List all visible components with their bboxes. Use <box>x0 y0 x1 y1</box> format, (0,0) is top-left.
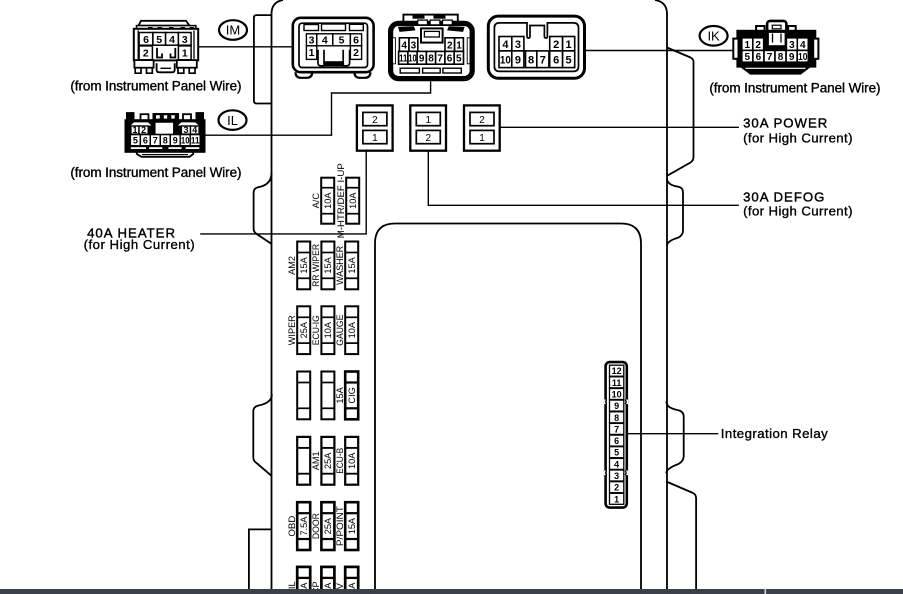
svg-text:15A: 15A <box>323 256 333 273</box>
svg-text:AM2: AM2 <box>287 256 297 275</box>
svg-text:AM1: AM1 <box>311 451 321 470</box>
svg-text:ECU-IG: ECU-IG <box>311 315 321 345</box>
svg-text:25A: 25A <box>299 321 309 338</box>
svg-text:1: 1 <box>614 494 619 504</box>
svg-text:3: 3 <box>183 125 188 135</box>
svg-text:15A: 15A <box>347 256 357 273</box>
svg-text:1: 1 <box>372 133 378 144</box>
svg-text:1: 1 <box>132 125 137 135</box>
svg-text:1: 1 <box>309 47 315 59</box>
svg-text:15A: 15A <box>335 386 345 403</box>
svg-text:10: 10 <box>500 54 511 66</box>
svg-text:4: 4 <box>322 35 328 47</box>
svg-text:1: 1 <box>566 39 572 51</box>
svg-text:3: 3 <box>182 34 188 46</box>
svg-text:3: 3 <box>614 471 619 481</box>
svg-text:(for High Current): (for High Current) <box>84 237 196 252</box>
svg-text:10: 10 <box>408 54 417 65</box>
svg-text:1: 1 <box>426 115 432 126</box>
svg-text:2: 2 <box>755 40 761 51</box>
svg-text:2: 2 <box>353 47 359 59</box>
svg-text:6: 6 <box>143 34 149 46</box>
svg-text:1: 1 <box>745 40 751 51</box>
svg-text:6: 6 <box>553 54 559 66</box>
svg-text:15A: 15A <box>347 517 357 534</box>
svg-text:(for High Current): (for High Current) <box>743 204 853 219</box>
svg-text:3: 3 <box>309 35 315 47</box>
svg-text:8: 8 <box>778 52 784 63</box>
svg-text:9: 9 <box>515 54 521 66</box>
svg-text:10: 10 <box>798 52 808 63</box>
svg-text:15A: 15A <box>299 256 309 273</box>
svg-text:1: 1 <box>479 133 485 144</box>
svg-text:3: 3 <box>515 39 521 51</box>
svg-text:4: 4 <box>169 34 175 46</box>
svg-text:CIG: CIG <box>347 387 357 403</box>
svg-text:OBD: OBD <box>287 515 297 536</box>
svg-text:8: 8 <box>528 54 534 66</box>
svg-text:5: 5 <box>156 34 162 46</box>
svg-text:WASHER: WASHER <box>335 246 345 285</box>
svg-text:6: 6 <box>143 136 148 146</box>
svg-text:5: 5 <box>614 448 619 458</box>
svg-text:2: 2 <box>553 39 559 51</box>
svg-text:10A: 10A <box>347 321 357 338</box>
svg-text:2: 2 <box>372 115 378 126</box>
svg-text:30A POWER: 30A POWER <box>743 115 828 130</box>
svg-text:1: 1 <box>456 41 462 52</box>
svg-text:2: 2 <box>479 115 485 126</box>
svg-text:5: 5 <box>566 54 572 66</box>
svg-text:12: 12 <box>612 366 622 376</box>
svg-text:3: 3 <box>789 40 795 51</box>
svg-text:4: 4 <box>401 41 407 52</box>
svg-text:(from Instrument Panel Wire): (from Instrument Panel Wire) <box>709 80 880 95</box>
svg-text:10A: 10A <box>323 321 333 338</box>
svg-text:4: 4 <box>502 39 509 51</box>
svg-text:4: 4 <box>800 40 806 51</box>
svg-text:2: 2 <box>143 48 149 60</box>
svg-text:6: 6 <box>756 52 762 63</box>
svg-text:2: 2 <box>141 125 146 135</box>
svg-text:10: 10 <box>612 390 622 400</box>
svg-text:A/C: A/C <box>311 193 321 209</box>
svg-text:7: 7 <box>614 424 619 434</box>
svg-text:(from Instrument Panel Wire): (from Instrument Panel Wire) <box>70 165 241 180</box>
svg-text:10A: 10A <box>347 452 357 469</box>
svg-text:8: 8 <box>428 54 434 65</box>
svg-text:7: 7 <box>540 54 546 66</box>
svg-text:8: 8 <box>163 136 168 146</box>
svg-text:5: 5 <box>456 54 462 65</box>
svg-text:10A: 10A <box>323 192 333 209</box>
svg-text:IK: IK <box>707 28 720 43</box>
svg-text:6: 6 <box>447 54 453 65</box>
svg-text:7: 7 <box>437 54 443 65</box>
svg-text:9: 9 <box>173 136 178 146</box>
svg-text:11: 11 <box>612 378 622 388</box>
svg-text:11: 11 <box>399 54 408 65</box>
svg-text:25A: 25A <box>323 452 333 469</box>
svg-text:10A: 10A <box>348 192 358 209</box>
svg-text:GAUGE: GAUGE <box>335 315 345 346</box>
svg-text:RR WIPER: RR WIPER <box>311 244 321 287</box>
svg-text:9: 9 <box>614 401 619 411</box>
svg-text:ECU-B: ECU-B <box>335 448 345 474</box>
svg-text:1: 1 <box>182 48 188 60</box>
svg-text:9: 9 <box>419 54 425 65</box>
svg-text:IM: IM <box>226 23 240 38</box>
svg-text:8: 8 <box>614 413 619 423</box>
svg-text:9: 9 <box>789 52 795 63</box>
svg-text:2: 2 <box>614 483 619 493</box>
svg-text:(from Instrument Panel Wire): (from Instrument Panel Wire) <box>70 78 241 93</box>
svg-text:7: 7 <box>767 52 773 63</box>
svg-text:4: 4 <box>614 459 619 469</box>
svg-text:30A DEFOG: 30A DEFOG <box>743 190 825 205</box>
svg-text:11: 11 <box>191 136 200 146</box>
svg-text:M-HTR/DEF I-UP: M-HTR/DEF I-UP <box>336 163 346 238</box>
svg-text:7.5A: 7.5A <box>299 516 309 536</box>
svg-text:4: 4 <box>192 125 197 135</box>
svg-text:P/POINT: P/POINT <box>335 506 345 546</box>
svg-text:(for High Current): (for High Current) <box>743 130 853 145</box>
svg-text:2: 2 <box>447 41 453 52</box>
svg-text:Integration Relay: Integration Relay <box>721 426 828 441</box>
svg-text:5: 5 <box>745 52 751 63</box>
svg-text:DOOR: DOOR <box>311 513 321 539</box>
svg-text:2: 2 <box>426 133 432 144</box>
svg-text:6: 6 <box>614 436 619 446</box>
svg-text:5: 5 <box>133 136 138 146</box>
svg-text:6: 6 <box>353 35 359 47</box>
svg-text:IL: IL <box>227 113 238 128</box>
svg-text:WIPER: WIPER <box>287 315 297 345</box>
svg-text:25A: 25A <box>323 517 333 534</box>
svg-text:3: 3 <box>411 41 417 52</box>
svg-text:10: 10 <box>181 136 190 146</box>
svg-text:7: 7 <box>153 136 158 146</box>
svg-text:5: 5 <box>339 35 345 47</box>
